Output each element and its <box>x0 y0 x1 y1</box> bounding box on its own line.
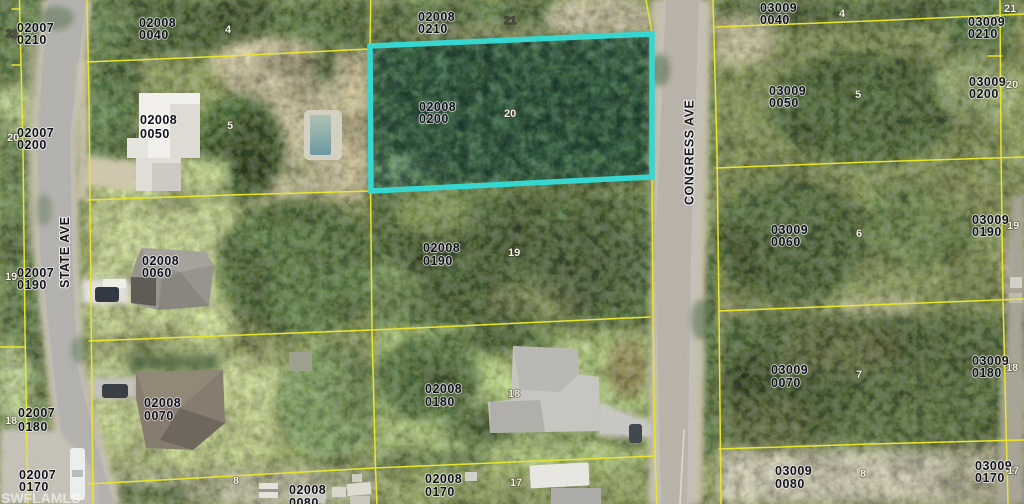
svg-text:20: 20 <box>504 108 516 120</box>
svg-text:7: 7 <box>856 369 862 381</box>
svg-text:0210: 0210 <box>968 27 998 41</box>
svg-text:0180: 0180 <box>972 366 1002 380</box>
svg-text:19: 19 <box>1007 220 1019 232</box>
svg-text:0080: 0080 <box>289 496 319 504</box>
svg-text:02008: 02008 <box>144 396 181 410</box>
svg-text:03009: 03009 <box>771 363 808 377</box>
svg-text:19: 19 <box>5 271 17 283</box>
svg-text:0210: 0210 <box>418 22 448 36</box>
svg-text:21: 21 <box>504 15 516 27</box>
svg-text:SWFLAMLS: SWFLAMLS <box>1 490 80 504</box>
svg-text:17: 17 <box>1007 465 1019 477</box>
svg-text:19: 19 <box>508 247 520 259</box>
svg-text:0080: 0080 <box>775 477 805 491</box>
svg-text:4: 4 <box>839 8 846 20</box>
svg-text:18: 18 <box>508 388 520 400</box>
svg-text:20: 20 <box>1006 79 1018 91</box>
svg-text:6: 6 <box>856 228 862 240</box>
svg-text:02008: 02008 <box>423 241 460 255</box>
svg-text:0060: 0060 <box>142 266 172 280</box>
svg-text:0070: 0070 <box>144 409 174 423</box>
svg-text:8: 8 <box>860 468 866 480</box>
svg-text:20: 20 <box>7 132 19 144</box>
svg-text:8: 8 <box>233 475 239 487</box>
svg-text:4: 4 <box>225 24 232 36</box>
svg-text:0170: 0170 <box>975 471 1005 485</box>
svg-text:0190: 0190 <box>17 278 47 292</box>
svg-text:5: 5 <box>227 120 233 132</box>
svg-text:0040: 0040 <box>760 13 790 27</box>
svg-text:0200: 0200 <box>17 138 47 152</box>
svg-text:0200: 0200 <box>969 87 999 101</box>
svg-text:0200: 0200 <box>419 112 449 126</box>
svg-text:0060: 0060 <box>771 235 801 249</box>
svg-text:17: 17 <box>510 477 522 489</box>
svg-text:CONGRESS AVE: CONGRESS AVE <box>683 100 697 205</box>
svg-text:0070: 0070 <box>771 376 801 390</box>
svg-text:18: 18 <box>1006 362 1018 374</box>
svg-text:0170: 0170 <box>425 485 455 499</box>
svg-text:5: 5 <box>855 89 861 101</box>
svg-text:0180: 0180 <box>18 420 48 434</box>
svg-text:03009: 03009 <box>775 464 812 478</box>
svg-text:0190: 0190 <box>972 225 1002 239</box>
svg-text:02008: 02008 <box>425 472 462 486</box>
svg-text:18: 18 <box>5 415 17 427</box>
svg-text:21: 21 <box>6 28 18 40</box>
svg-text:02008: 02008 <box>425 382 462 396</box>
svg-text:02008: 02008 <box>140 113 177 127</box>
svg-text:0050: 0050 <box>140 127 170 141</box>
svg-text:0050: 0050 <box>769 96 799 110</box>
svg-text:0190: 0190 <box>423 254 453 268</box>
svg-text:0210: 0210 <box>17 33 47 47</box>
svg-text:0180: 0180 <box>425 395 455 409</box>
svg-text:21: 21 <box>1004 3 1016 15</box>
svg-text:0040: 0040 <box>139 28 169 42</box>
svg-text:02008: 02008 <box>289 483 326 497</box>
svg-text:STATE AVE: STATE AVE <box>58 217 72 288</box>
svg-text:02007: 02007 <box>18 406 55 420</box>
